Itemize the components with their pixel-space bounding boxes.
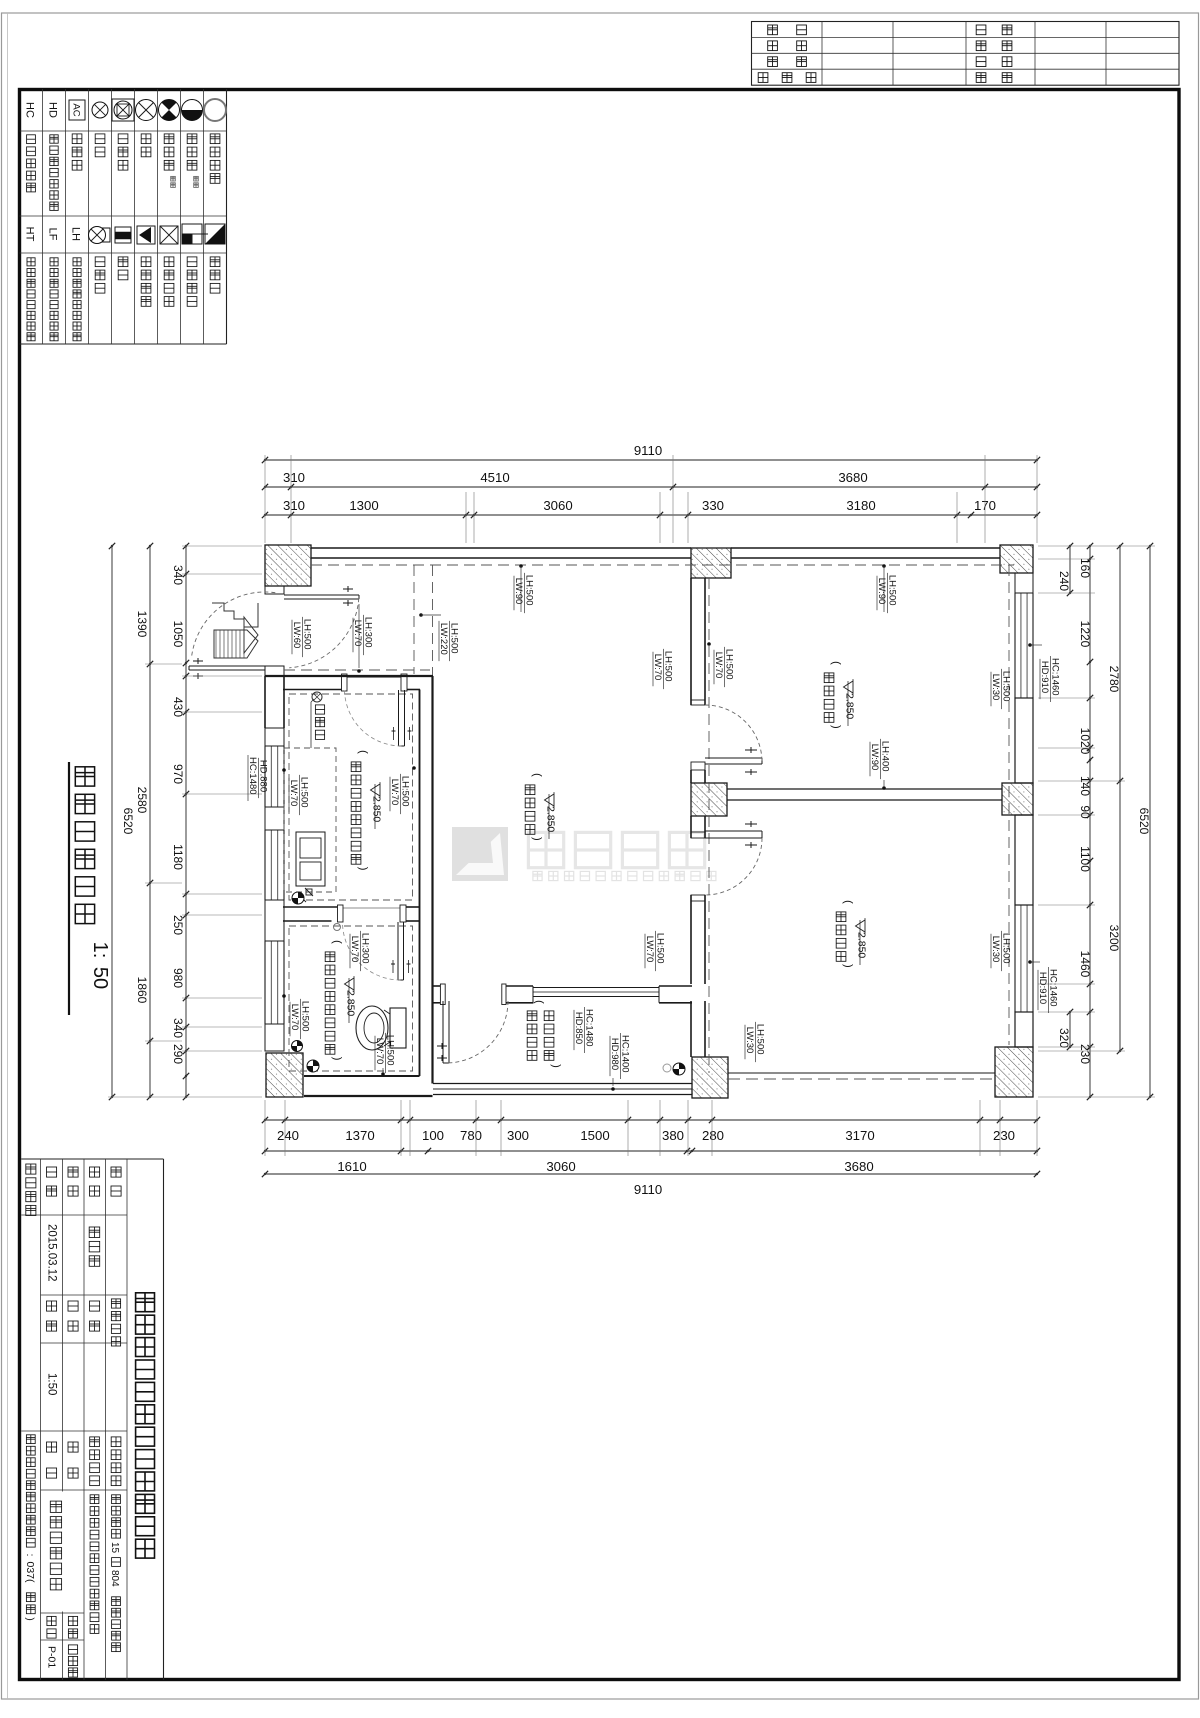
svg-text:LH:500: LH:500 [755, 1024, 766, 1055]
svg-text:LW:70: LW:70 [374, 1038, 385, 1065]
svg-text:340: 340 [171, 565, 185, 585]
svg-text:HC:1460: HC:1460 [1048, 969, 1059, 1007]
svg-text:1370: 1370 [345, 1128, 374, 1143]
svg-text:HC: HC [24, 102, 36, 118]
svg-text:(: ( [531, 773, 543, 777]
svg-text::: : [24, 1554, 35, 1557]
svg-text:): ) [331, 1057, 343, 1061]
svg-text:1220: 1220 [1078, 621, 1092, 648]
svg-text:290: 290 [171, 1044, 185, 1064]
svg-text:1050: 1050 [171, 621, 185, 648]
svg-text:): ) [24, 1617, 36, 1621]
svg-text:804: 804 [109, 1570, 120, 1587]
svg-text:310: 310 [283, 498, 305, 513]
svg-text:HD: HD [47, 102, 59, 118]
svg-text:LH:500: LH:500 [400, 776, 411, 807]
svg-text:2.850: 2.850 [371, 796, 383, 822]
svg-text:LH:500: LH:500 [887, 575, 898, 606]
svg-text:LH:500: LH:500 [299, 777, 310, 808]
svg-text:): ) [531, 837, 543, 841]
svg-text:6520: 6520 [1137, 808, 1151, 835]
svg-text:1100: 1100 [1078, 846, 1092, 872]
svg-text:LW:70: LW:70 [289, 1004, 300, 1031]
svg-text:LW:70: LW:70 [352, 620, 363, 647]
svg-text:90: 90 [1078, 805, 1092, 819]
svg-text:3200: 3200 [1107, 925, 1121, 952]
svg-text:3680: 3680 [838, 470, 867, 485]
svg-text:780: 780 [460, 1128, 482, 1143]
svg-text:1500: 1500 [580, 1128, 609, 1143]
svg-text:HC:1400: HC:1400 [620, 1035, 631, 1073]
svg-text:LH:500: LH:500 [524, 575, 535, 606]
svg-text:HC:1460: HC:1460 [1050, 658, 1061, 696]
svg-text:2.850: 2.850 [844, 693, 856, 719]
svg-text:320: 320 [1057, 1028, 1071, 1048]
svg-text:340: 340 [171, 1018, 185, 1038]
svg-text:P-01: P-01 [46, 1646, 58, 1668]
svg-text:6520: 6520 [121, 808, 135, 835]
svg-text:LH:500: LH:500 [1001, 671, 1012, 702]
svg-text:1300: 1300 [349, 498, 378, 513]
svg-text:160: 160 [1078, 558, 1092, 578]
svg-text:3060: 3060 [546, 1159, 575, 1174]
svg-text:970: 970 [171, 764, 185, 784]
svg-text:AC: AC [71, 103, 82, 116]
svg-text:HT: HT [24, 227, 36, 242]
svg-text:240: 240 [277, 1128, 299, 1143]
svg-text:(: ( [357, 750, 369, 754]
svg-text:3060: 3060 [543, 498, 572, 513]
svg-text:2.850: 2.850 [856, 932, 868, 958]
svg-text:9110: 9110 [634, 443, 662, 458]
svg-text:100: 100 [422, 1128, 444, 1143]
svg-text:(: ( [533, 1000, 545, 1004]
svg-text:LW:70: LW:70 [652, 654, 663, 681]
svg-text:LH:500: LH:500 [385, 1035, 396, 1066]
svg-text:1460: 1460 [1078, 951, 1092, 978]
svg-text:230: 230 [993, 1128, 1015, 1143]
svg-text:LH:300: LH:300 [360, 933, 371, 964]
svg-text:LH:500: LH:500 [1001, 933, 1012, 964]
svg-text:LW:70: LW:70 [389, 779, 400, 806]
svg-text:330: 330 [702, 498, 724, 513]
svg-text:380: 380 [662, 1128, 684, 1143]
svg-text:LW:30: LW:30 [990, 936, 1001, 963]
svg-text:1:50: 1:50 [46, 1373, 58, 1395]
svg-text:LH:500: LH:500 [655, 933, 666, 964]
svg-text:1:: 1: [89, 942, 111, 959]
svg-text:1020: 1020 [1078, 728, 1092, 755]
svg-text:1180: 1180 [171, 844, 185, 870]
svg-text:1390: 1390 [135, 611, 149, 638]
svg-text:9110: 9110 [634, 1182, 662, 1197]
svg-text:LW:30: LW:30 [990, 674, 1001, 701]
svg-text:50: 50 [89, 967, 111, 989]
svg-text:140: 140 [1078, 776, 1092, 796]
svg-text:): ) [830, 725, 842, 729]
svg-text:LW:220: LW:220 [438, 623, 449, 655]
svg-text:980: 980 [171, 968, 185, 988]
svg-text:HD:880: HD:880 [258, 760, 269, 792]
svg-text:2780: 2780 [1107, 666, 1121, 693]
svg-text:300: 300 [507, 1128, 529, 1143]
svg-text:LH:400: LH:400 [880, 741, 891, 772]
svg-text:15: 15 [109, 1542, 120, 1554]
svg-text:LW:30: LW:30 [744, 1027, 755, 1054]
svg-text:HC:1480: HC:1480 [584, 1009, 595, 1047]
svg-text:2015.03.12: 2015.03.12 [46, 1224, 58, 1282]
svg-text:240: 240 [1057, 571, 1071, 591]
svg-text:LH:500: LH:500 [663, 651, 674, 682]
svg-text:HD:910: HD:910 [1037, 972, 1048, 1004]
svg-text:HD:980: HD:980 [609, 1038, 620, 1070]
svg-text:(: ( [331, 940, 343, 944]
svg-text:310: 310 [283, 470, 305, 485]
svg-text:(: ( [842, 900, 854, 904]
svg-text:LW:70: LW:70 [644, 936, 655, 963]
svg-text:LW:90: LW:90 [869, 744, 880, 771]
svg-text:1610: 1610 [337, 1159, 366, 1174]
svg-text:3680: 3680 [844, 1159, 873, 1174]
svg-text:(: ( [830, 661, 842, 665]
svg-text:2.850: 2.850 [545, 806, 557, 832]
svg-text:): ) [357, 867, 369, 871]
svg-text:LH:500: LH:500 [449, 623, 460, 654]
svg-text:LW:70: LW:70 [349, 936, 360, 963]
svg-text:250: 250 [171, 915, 185, 935]
svg-text:2.850: 2.850 [345, 990, 357, 1016]
svg-text:): ) [550, 1064, 562, 1068]
svg-text:4510: 4510 [480, 470, 509, 485]
svg-text:HD:850: HD:850 [573, 1012, 584, 1044]
svg-text:3170: 3170 [845, 1128, 874, 1143]
svg-text:3180: 3180 [846, 498, 875, 513]
svg-text:LH:300: LH:300 [363, 617, 374, 648]
svg-text:HC:1480: HC:1480 [247, 757, 258, 795]
svg-text:LH:500: LH:500 [302, 619, 313, 650]
svg-text:LH: LH [70, 227, 82, 241]
svg-text:280: 280 [702, 1128, 724, 1143]
svg-text:LW:70: LW:70 [713, 652, 724, 679]
svg-text:LH:500: LH:500 [300, 1001, 311, 1032]
svg-text:037(: 037( [24, 1561, 36, 1583]
svg-text:LF: LF [47, 228, 59, 241]
svg-text:LH:500: LH:500 [724, 649, 735, 680]
svg-text:): ) [842, 964, 854, 968]
svg-text:LW:70: LW:70 [288, 780, 299, 807]
svg-text:LW:60: LW:60 [291, 622, 302, 649]
svg-text:2580: 2580 [135, 787, 149, 814]
svg-text:HD:910: HD:910 [1039, 661, 1050, 693]
svg-text:1860: 1860 [135, 977, 149, 1004]
svg-text:LW:90: LW:90 [513, 578, 524, 605]
svg-text:430: 430 [171, 697, 185, 717]
svg-text:LW:90: LW:90 [876, 578, 887, 605]
